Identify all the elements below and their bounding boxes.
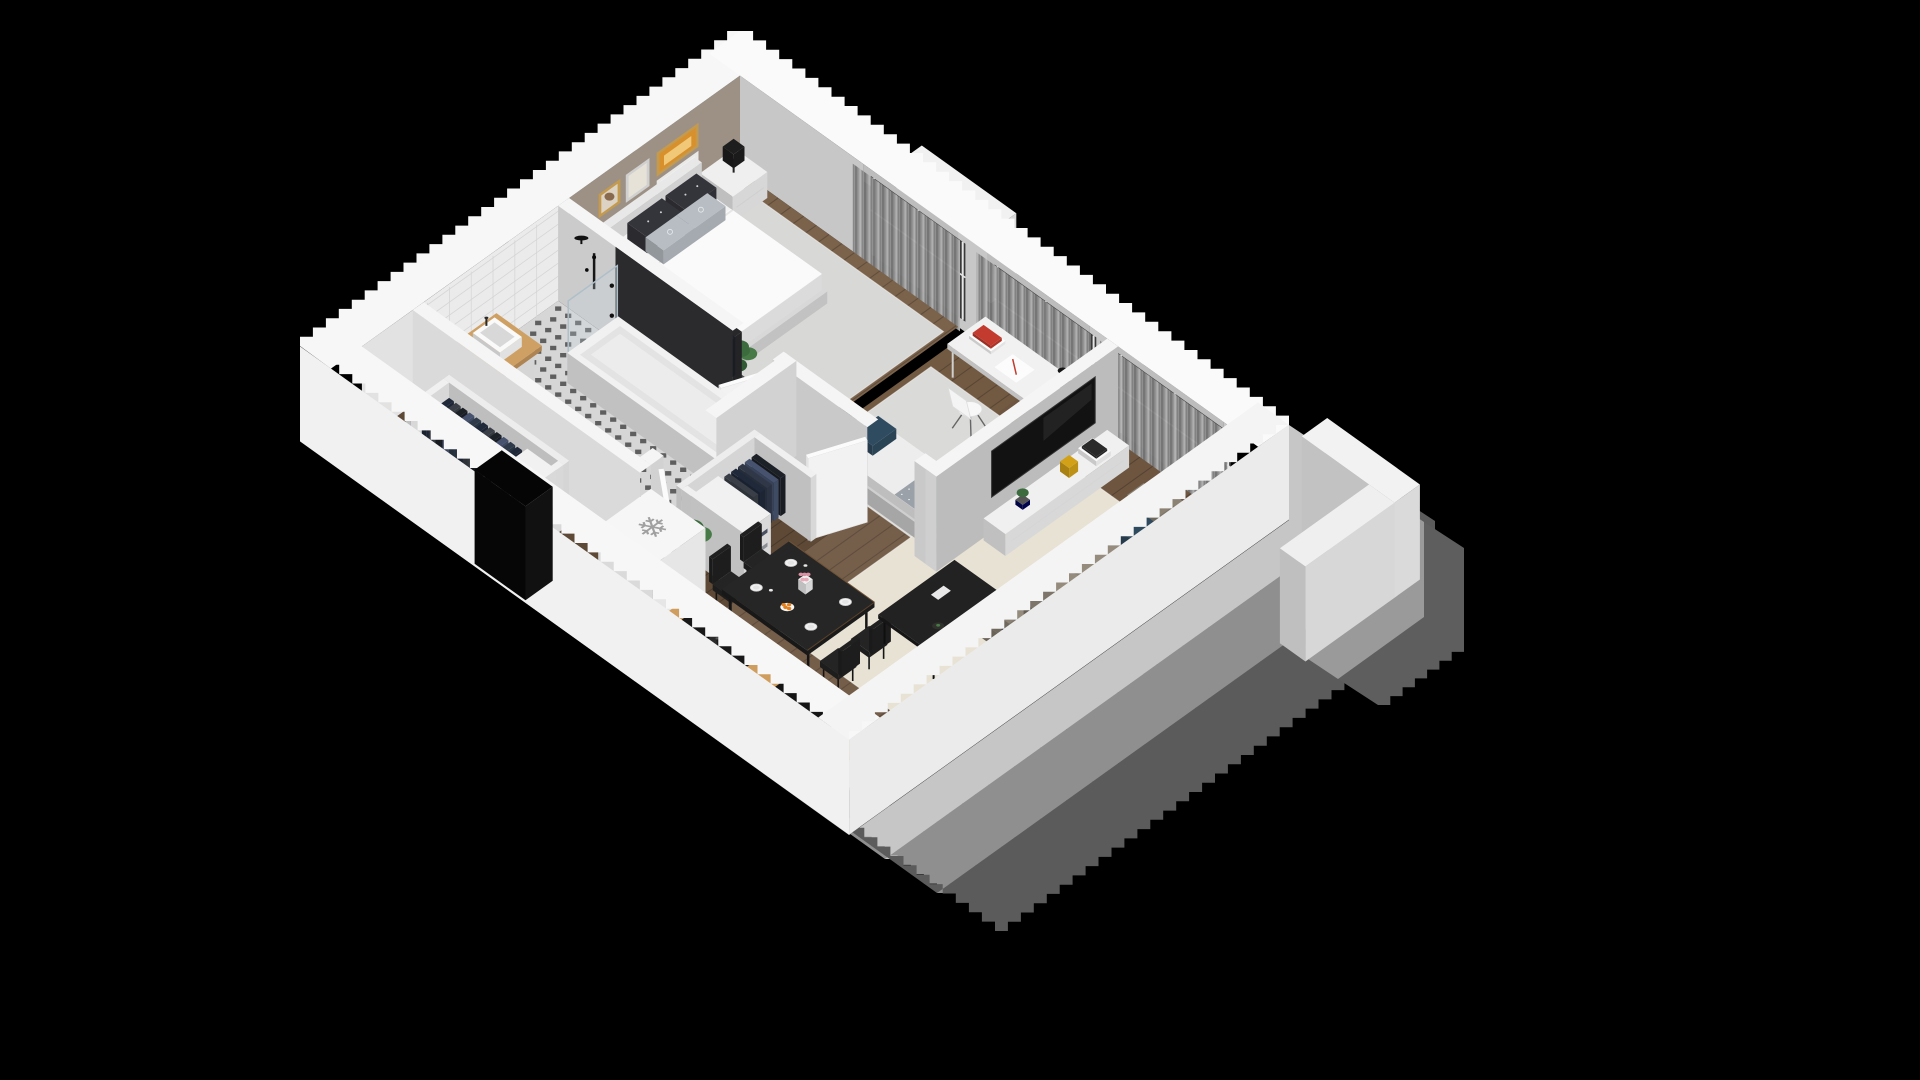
apartment-isometric-svg: ❄ [0, 0, 1920, 1080]
apartment-floorplan-render: Isometric 3D apartment floor plan render… [0, 0, 1920, 1080]
